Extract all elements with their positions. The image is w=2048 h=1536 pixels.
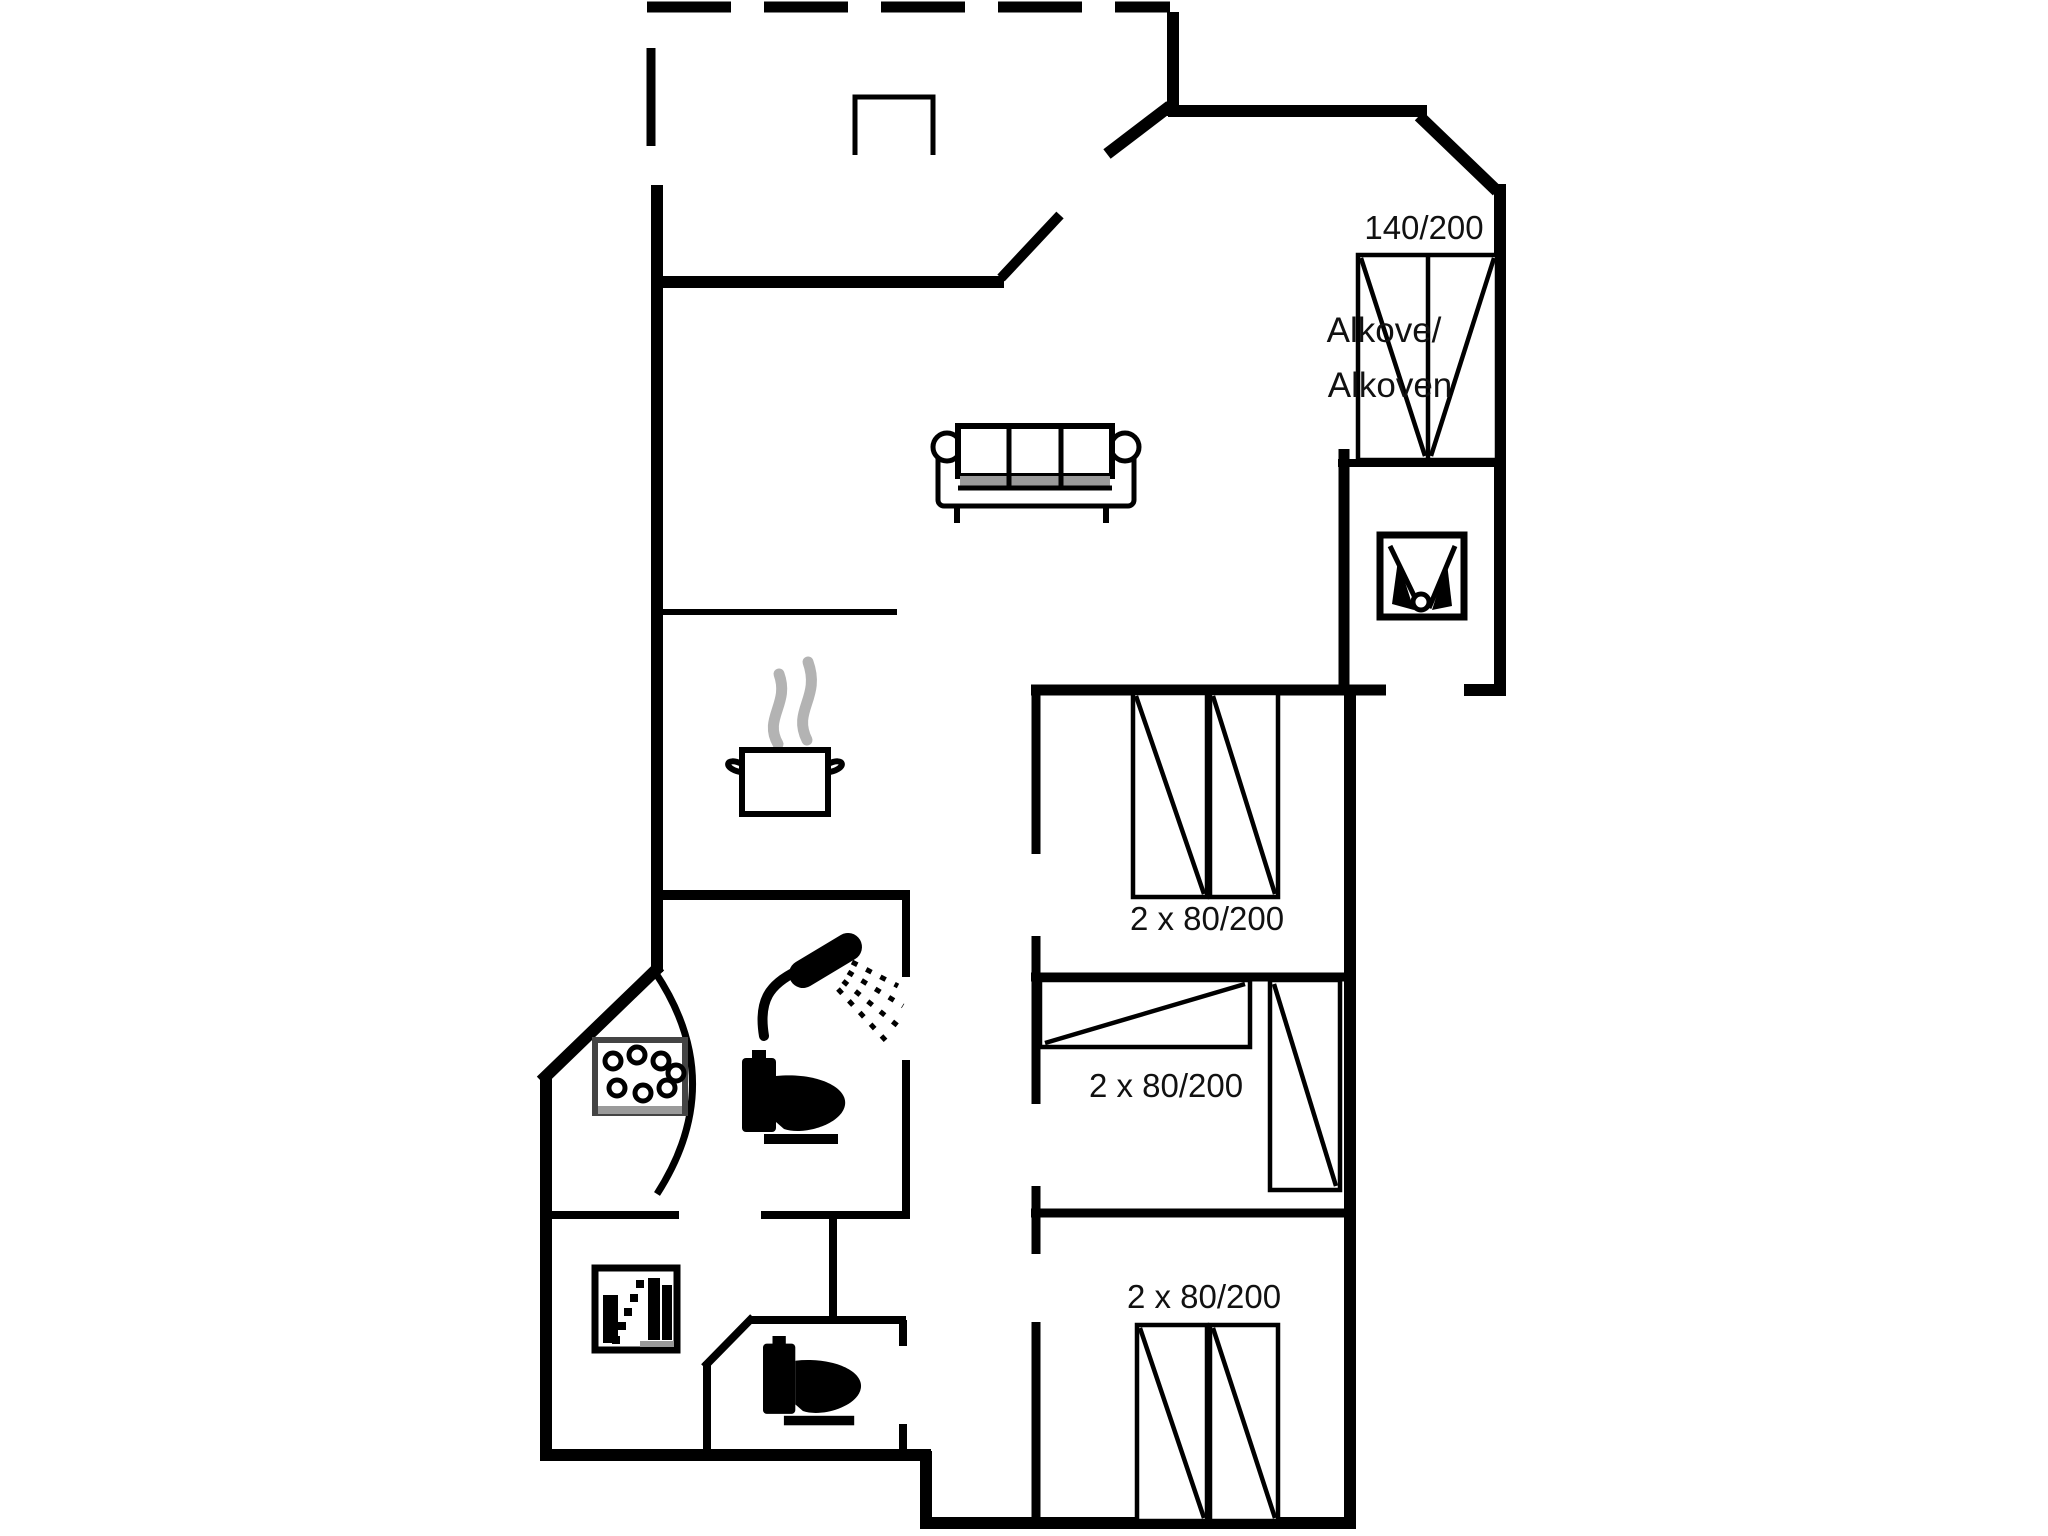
utility-room [595,1268,677,1350]
alcove-name-line2: Alkoven [1328,366,1453,406]
steam-icon [773,662,811,744]
toilet-base [784,1416,854,1426]
spa-bubble [609,1080,625,1096]
cooking-pot-icon [728,750,842,814]
bedroom3-bed-size-label: 2 x 80/200 [1127,1278,1281,1316]
pot-body [742,750,828,814]
spa-bubble [629,1047,645,1063]
alcove [1358,255,1497,460]
wall-wc-chamfer [704,1317,753,1367]
alcove-name-line1: Alkove/ [1327,311,1442,351]
steam-wisp [773,674,781,744]
wc [763,1336,861,1425]
shower-head [803,947,848,974]
shower-spray-ray [848,972,903,1006]
open-door-leaf [1001,215,1060,278]
spa-bubbles-icon [595,1040,685,1113]
toilet-icon [742,1050,845,1144]
interior-walls [542,449,1503,1526]
appliance-detail [603,1295,618,1343]
appliance-dot [618,1322,626,1330]
appliance-dot [630,1294,638,1302]
bedroom1-bed-size-label: 2 x 80/200 [1130,900,1284,938]
appliance-dot [624,1308,632,1316]
entry-room [1380,535,1464,617]
shower-spray-ray [852,962,898,986]
spa-bubble [653,1053,669,1069]
spa-bubble [659,1080,675,1096]
washing-appliance-icon [595,1268,677,1350]
sofa-back-cushions [958,426,1112,476]
bedroom2-bed-size-label: 2 x 80/200 [1089,1067,1243,1105]
toilet-tank [763,1344,795,1414]
wall-chamfer-top-right [1419,116,1497,191]
toilet-bowl [776,1075,845,1131]
entry-appliance-icon [1380,535,1464,617]
bedroom-1 [1133,693,1278,897]
appliance-dot [636,1280,644,1288]
spa-bubble [605,1053,621,1069]
sofa-icon [933,426,1139,523]
appliance-detail [648,1278,660,1340]
appliance-detail [662,1285,672,1340]
spa-bubble [635,1085,651,1101]
floor-plan-canvas: 140/200 Alkove/ Alkoven 2 x 80/200 2 x 8… [0,0,2048,1536]
appliance-detail [1413,594,1429,610]
kitchen [728,662,842,814]
floor-plan-drawing [0,0,2048,1536]
sofa-arm-right [1111,433,1139,461]
shower-spray [838,962,903,1043]
toilet-tank [742,1058,776,1132]
terrace-structure [855,97,933,155]
alcove-bed-size-label: 140/200 [1364,209,1483,247]
toilet-bowl [795,1360,861,1413]
steam-wisp [803,662,812,740]
toilet-icon-2 [763,1336,861,1425]
wall-chamfer-terrace-door [1107,106,1170,154]
shower-spray-ray [838,989,888,1043]
appliance-dot [612,1336,620,1344]
exterior-walls [540,12,1506,1528]
living-room [933,426,1139,523]
toilet-base [764,1134,838,1144]
terrace [647,7,1170,155]
shower-icon [762,947,903,1043]
bedroom-3 [1137,1325,1278,1521]
